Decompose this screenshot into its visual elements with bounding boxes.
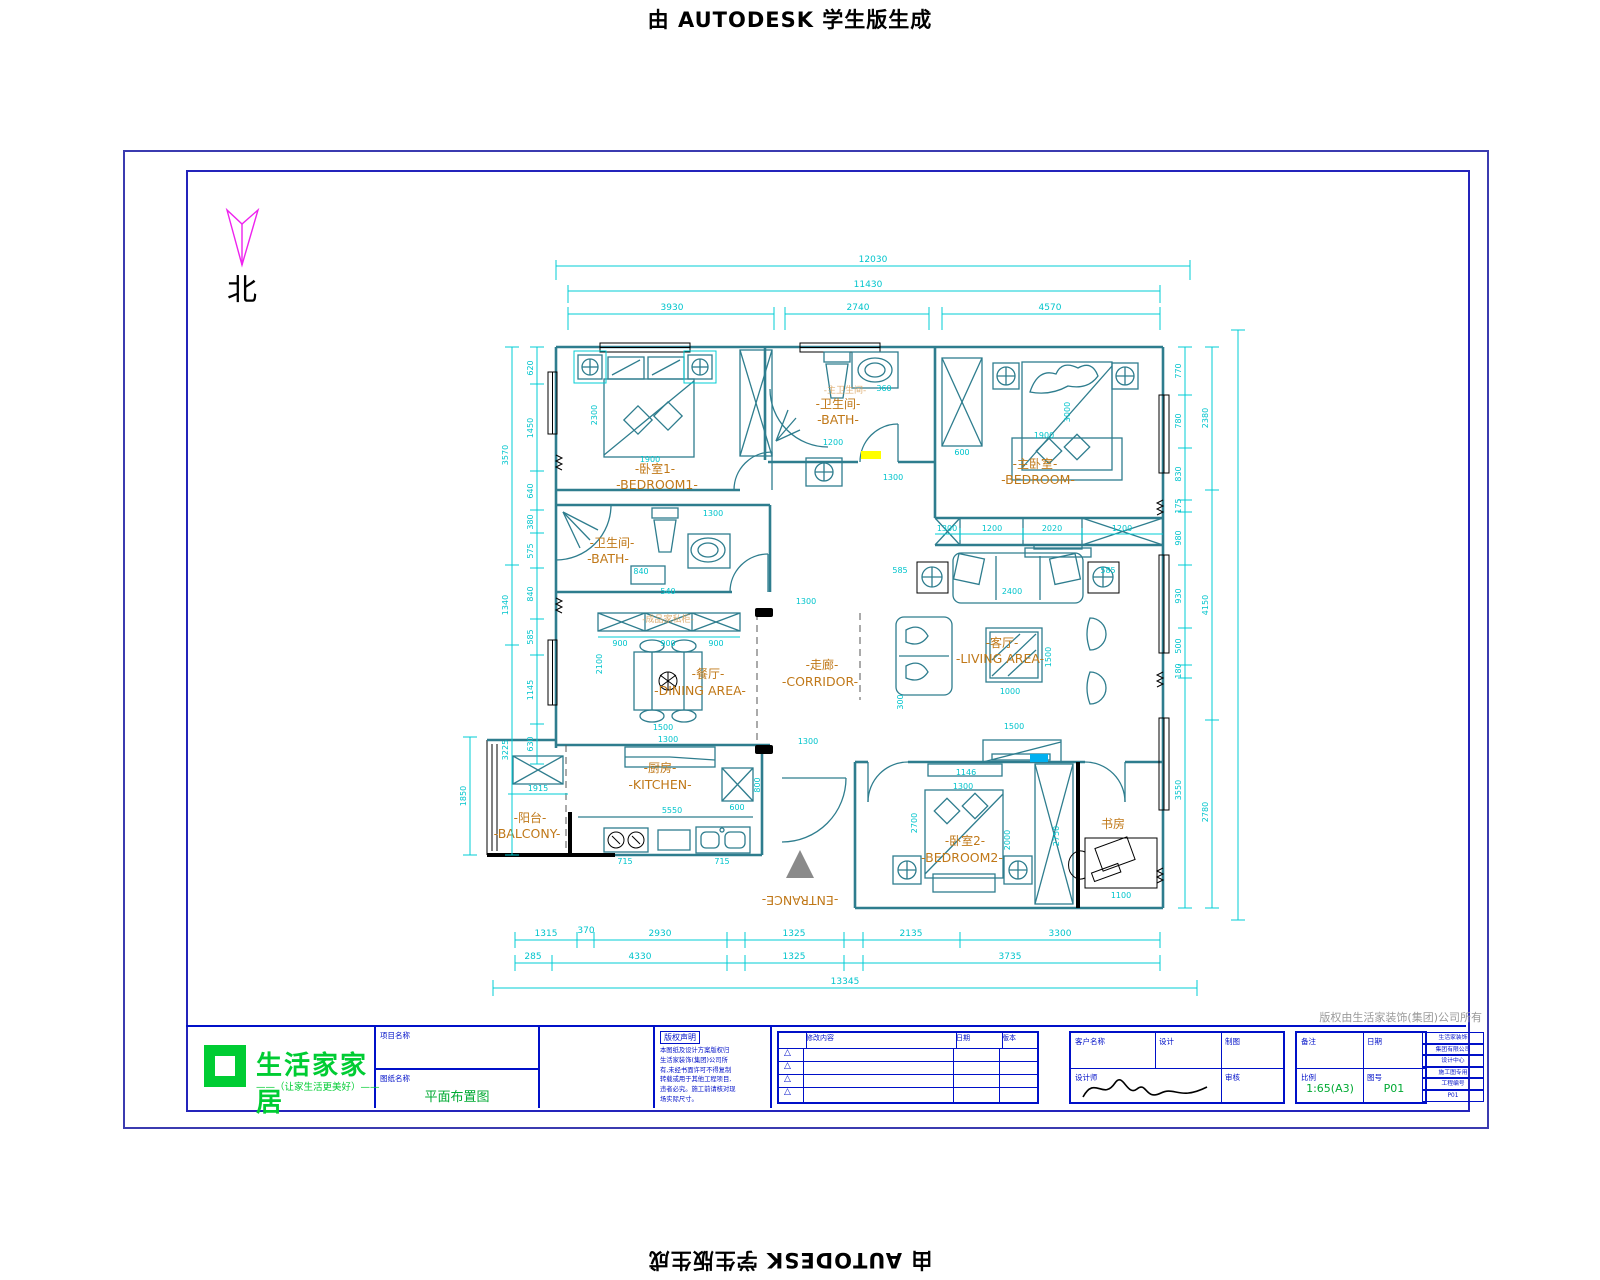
fridge-icon: [722, 768, 753, 801]
room-label-zh: -阳台-: [514, 810, 547, 825]
revision-col-ver: 版本: [999, 1033, 1037, 1043]
entrance-arrow-icon: [786, 850, 814, 878]
dim-label: 1500: [653, 723, 673, 732]
dim-label: 3000: [1063, 402, 1072, 422]
project-name-field: 项目名称: [376, 1027, 538, 1068]
project-cell: 项目名称 图纸名称 平面布置图: [376, 1027, 540, 1108]
info-stack-row: 设计中心: [1422, 1055, 1484, 1067]
floorplan-drawing: 北: [186, 170, 1466, 1025]
dim-label: 1145: [526, 680, 535, 700]
room-label-en: -KITCHEN-: [628, 777, 691, 792]
scale-sheet-cell: 备注 日期 比例 1:65(A3) 图号 P01: [1290, 1027, 1432, 1108]
dim-label: 840: [526, 586, 535, 601]
dim-label: 2400: [1002, 587, 1022, 596]
drawing-name-label: 图纸名称: [380, 1073, 410, 1084]
room-label-en: -BALCONY-: [494, 826, 561, 841]
scale-row-top: 备注 日期: [1297, 1033, 1425, 1068]
sink-icon: [852, 352, 898, 388]
entrance-door-icon: [782, 778, 846, 842]
sofa-icon: [896, 617, 952, 695]
logo-icon: [204, 1045, 246, 1087]
dim-label: 500: [1174, 638, 1183, 653]
pillow-icon: [1030, 365, 1098, 393]
fields-row-top: 客户名称 设计 制图: [1071, 1033, 1283, 1068]
dim-label: 3225: [501, 740, 510, 760]
room-label-zh: -走廊-: [806, 657, 839, 672]
dim-label: 1340: [501, 595, 510, 615]
dim-label: 620: [526, 360, 535, 375]
highlight-marker: [1030, 754, 1048, 762]
dim-label: 2930: [649, 929, 672, 939]
sink-icon: [691, 538, 725, 562]
counter-cabinet-icon: [658, 830, 690, 850]
dim-label: 575: [526, 543, 535, 558]
dim-label: 1300: [703, 509, 723, 518]
dim-label: 1500: [1044, 647, 1053, 667]
walls: [487, 347, 1163, 908]
dim-label: 585: [892, 566, 907, 575]
washing-machine-icon: [513, 756, 563, 784]
notice-text: 本图纸及设计方案版权归 生活家装饰(集团)公司所 有,未经书面许可不得复制 转载…: [660, 1046, 767, 1105]
room-label-zh: -厨房-: [644, 760, 677, 775]
window-icon: [600, 343, 690, 352]
dim-label: 1200: [982, 524, 1002, 533]
room-label-zh: -卫生间-: [590, 536, 635, 550]
dim-label: 4150: [1201, 595, 1210, 615]
design-label: 设计: [1159, 1036, 1174, 1047]
dim-label: 630: [526, 736, 535, 751]
dim-label: 930: [1174, 588, 1183, 603]
balcony-furniture: [513, 756, 563, 784]
dim-label: 1915: [528, 784, 548, 793]
notice-header: 版权声明: [660, 1031, 700, 1044]
room-label-zh: -餐厅-: [692, 666, 725, 681]
dining-table-icon: [634, 640, 702, 722]
drawing-name-field: 图纸名称 平面布置图: [376, 1068, 538, 1109]
dim-label: 4570: [1039, 303, 1062, 313]
dims-right: 770 780 830 175 980 930 500 180 3550 238…: [1174, 330, 1245, 920]
dim-label: 585: [1100, 566, 1115, 575]
dim-label: 12030: [859, 255, 888, 265]
cad-floorplan-page: { "watermark": {"text": "由 AUTODESK 学生版生…: [0, 0, 1600, 1280]
room-label-zh: 书房: [1101, 816, 1125, 831]
dim-label: 3550: [1174, 780, 1183, 800]
dim-label: 1325: [783, 929, 806, 939]
watermark-bottom: 由 AUTODESK 学生版生成: [648, 1246, 933, 1276]
signature-fields-cell: 客户名称 设计 制图 设计师 审核: [1064, 1027, 1290, 1108]
wardrobe-icon: [740, 350, 772, 456]
notice-line: 违者必究。施工前请核对现: [660, 1085, 767, 1095]
dim-label: 980: [1174, 530, 1183, 545]
room-label-en: -BEDROOM2-: [921, 850, 1003, 865]
dim-label: 3570: [501, 445, 510, 465]
logo-tagline: ——（让家生活更美好）——: [256, 1079, 380, 1093]
dim-label: 3735: [999, 952, 1022, 962]
dim-label: 830: [1174, 466, 1183, 481]
dim-label: 380: [526, 514, 535, 529]
revision-col-desc: 修改内容: [803, 1033, 957, 1048]
info-stack-row: 工程编号: [1422, 1078, 1484, 1090]
revision-table: 修改内容 日期 版本 △ △ △ △: [777, 1031, 1039, 1104]
armchair-icon: [1087, 672, 1106, 704]
room-label-en: -BEDROOM-: [1001, 472, 1075, 487]
wardrobe-icon: [942, 358, 982, 446]
copyright-note: 版权由生活家装饰(集团)公司所有: [1150, 1009, 1482, 1025]
dim-label: 1300: [658, 735, 678, 744]
dim-label: 1146: [956, 768, 976, 777]
window-icon: [1159, 395, 1169, 473]
logo-cell: 生活家家居 ——（让家生活更美好）——: [186, 1027, 376, 1108]
toilet-icon: [652, 508, 678, 552]
dim-label: 2020: [1042, 524, 1062, 533]
dims-top: 12030 11430 3930 2740 4570: [556, 255, 1190, 330]
room-label-en: -DINING AREA-: [654, 683, 746, 698]
room-ghost-label: -主卫生间-: [824, 384, 867, 396]
dim-label: 770: [1174, 363, 1183, 378]
window-icon: [1159, 555, 1169, 653]
dim-label: 540: [660, 587, 675, 596]
dim-label: 600: [729, 803, 744, 812]
desk-icon: [1085, 838, 1157, 888]
dim-label: 1900: [1034, 431, 1054, 440]
dim-label: 5550: [662, 806, 682, 815]
dim-label: 900: [708, 639, 723, 648]
dim-label: 600: [954, 448, 969, 457]
draft-label: 制图: [1225, 1036, 1240, 1047]
designer-signature: [1075, 1073, 1215, 1103]
audit-label: 审核: [1225, 1072, 1240, 1083]
dim-label: 780: [1174, 413, 1183, 428]
room-labels: -卧室1- -BEDROOM1- -主卫生间- -卫生间- -BATH- -主卧…: [494, 384, 1125, 865]
room-label-en: -CORRIDOR-: [782, 674, 858, 689]
dim-label: 1300: [953, 782, 973, 791]
info-stack-row: 生活家装饰: [1422, 1032, 1484, 1044]
notice-line: 本图纸及设计方案版权归: [660, 1046, 767, 1056]
dim-label: 3930: [661, 303, 684, 313]
dim-label: 900: [660, 639, 675, 648]
revision-col-date: 日期: [953, 1033, 1003, 1048]
dim-label: 2380: [1201, 408, 1210, 428]
date-label: 日期: [1367, 1036, 1382, 1047]
notice-line: 转载或用于其他工程项目,: [660, 1075, 767, 1085]
info-stack-row: 施工图专用: [1422, 1067, 1484, 1079]
bath2-furniture: [556, 505, 768, 592]
title-block: 生活家家居 ——（让家生活更美好）—— 项目名称 图纸名称 平面布置图 版权声明…: [186, 1025, 1466, 1108]
dim-label: 1300: [937, 524, 957, 533]
watermark-top: 由 AUTODESK 学生版生成: [648, 4, 933, 34]
room-label-zh: -卫生间-: [816, 397, 861, 411]
dim-label: 715: [617, 857, 632, 866]
dim-label: 1500: [1004, 722, 1024, 731]
dim-label: 2135: [900, 929, 923, 939]
dim-label: 300: [896, 694, 905, 709]
dim-label: 3300: [1049, 929, 1072, 939]
copyright-notice-cell: 版权声明 本图纸及设计方案版权归 生活家装饰(集团)公司所 有,未经书面许可不得…: [655, 1027, 772, 1108]
info-stack-row: 集团有限公司: [1422, 1044, 1484, 1056]
dim-label: 1200: [1112, 524, 1132, 533]
dim-label: 285: [524, 952, 541, 962]
bed-bench-icon: [933, 874, 995, 892]
dim-label: 2740: [847, 303, 870, 313]
dim-label: 585: [526, 629, 535, 644]
note-label: 备注: [1301, 1036, 1316, 1047]
room-label-en: -LIVING AREA-: [956, 651, 1044, 666]
notice-line: 场实际尺寸。: [660, 1095, 767, 1105]
dim-label: 2780: [1201, 802, 1210, 822]
room-label-en: -BATH-: [587, 551, 629, 566]
room-label-zh: -主卧室-: [1013, 456, 1058, 471]
scale-row-bottom: 比例 1:65(A3) 图号 P01: [1297, 1068, 1425, 1103]
fields-row-bottom: 设计师 审核: [1071, 1068, 1283, 1103]
dim-label: 2700: [910, 813, 919, 833]
window-icon: [1159, 718, 1169, 810]
dim-label: 640: [526, 483, 535, 498]
watermark-left: 由 AUTODESK 学生版生成: [0, 462, 4, 747]
dim-label: 360: [876, 384, 891, 393]
revision-table-cell: 修改内容 日期 版本 △ △ △ △: [772, 1027, 1044, 1108]
dim-label: 1300: [798, 737, 818, 746]
north-arrow-icon: 北: [227, 210, 258, 308]
dim-label: 2000: [1003, 830, 1012, 850]
dim-label: 2300: [590, 405, 599, 425]
room-label-zh: -客厅-: [986, 635, 1019, 650]
info-stack: 生活家装饰 集团有限公司 设计中心 施工图专用 工程编号 P01: [1422, 1032, 1484, 1102]
dim-label: 1200: [823, 438, 843, 447]
dim-label: 11430: [854, 280, 883, 290]
door-stop-marker: [755, 608, 773, 617]
dim-label: 2750: [1052, 826, 1061, 846]
entrance-label: -ENTRANCE-: [762, 893, 839, 908]
highlight-marker: [861, 451, 881, 459]
dim-label: 180: [1174, 663, 1183, 678]
dim-label: 175: [1174, 498, 1183, 513]
dim-label: 1850: [459, 786, 468, 806]
laptop-icon: [1095, 837, 1135, 871]
door-icon: [730, 554, 768, 592]
door-icon: [868, 762, 908, 802]
north-label: 北: [227, 273, 257, 308]
scale-value: 1:65(A3): [1297, 1082, 1363, 1095]
door-icon: [1085, 762, 1125, 802]
dim-label: 1000: [1000, 687, 1020, 696]
dim-label: 1300: [883, 473, 903, 482]
dim-label: 2100: [595, 654, 604, 674]
dim-label: 900: [612, 639, 627, 648]
dim-label: 370: [577, 926, 594, 936]
stove-icon: [604, 828, 648, 852]
room-label-en: -BEDROOM1-: [616, 477, 698, 492]
dim-label: 840: [633, 567, 648, 576]
project-name-label: 项目名称: [380, 1030, 410, 1041]
window-icon: [800, 343, 880, 352]
dim-label: 800: [753, 777, 762, 792]
dim-label: 1300: [796, 597, 816, 606]
tv-cabinet-icon: [983, 740, 1061, 762]
watermark-right: 由 AUTODESK 学生版生成: [1596, 513, 1600, 798]
notice-line: 有,未经书面许可不得复制: [660, 1066, 767, 1076]
dim-label: 13345: [831, 977, 860, 987]
client-label: 客户名称: [1075, 1036, 1105, 1047]
dim-label: 1100: [1111, 891, 1131, 900]
kitchen-sink-icon: [696, 827, 750, 853]
dim-label: 715: [714, 857, 729, 866]
spare-cell: [540, 1027, 655, 1108]
room-label-en: -BATH-: [817, 412, 859, 427]
dim-label: 1450: [526, 418, 535, 438]
drawing-name-value: 平面布置图: [376, 1086, 538, 1105]
room-ghost-label: -成品家私柜-: [642, 613, 694, 625]
info-stack-row: P01: [1422, 1090, 1484, 1102]
dims-inner-rows: 1300 1200 2020 1200 900 900 900: [598, 524, 1163, 648]
dim-label: 1315: [535, 929, 558, 939]
sheet-value: P01: [1363, 1082, 1425, 1095]
dim-label: 1325: [783, 952, 806, 962]
entrance-items: -ENTRANCE-: [762, 778, 846, 908]
dim-label: 4330: [629, 952, 652, 962]
dim-label: 1900: [640, 455, 660, 464]
dims-bottom: 1315 370 2930 1325 2135 3300 285 4330 13…: [493, 926, 1197, 996]
door-stop-marker: [755, 745, 773, 754]
notice-line: 生活家装饰(集团)公司所: [660, 1056, 767, 1066]
armchair-icon: [1087, 618, 1106, 650]
room-label-zh: -卧室2-: [945, 833, 985, 848]
